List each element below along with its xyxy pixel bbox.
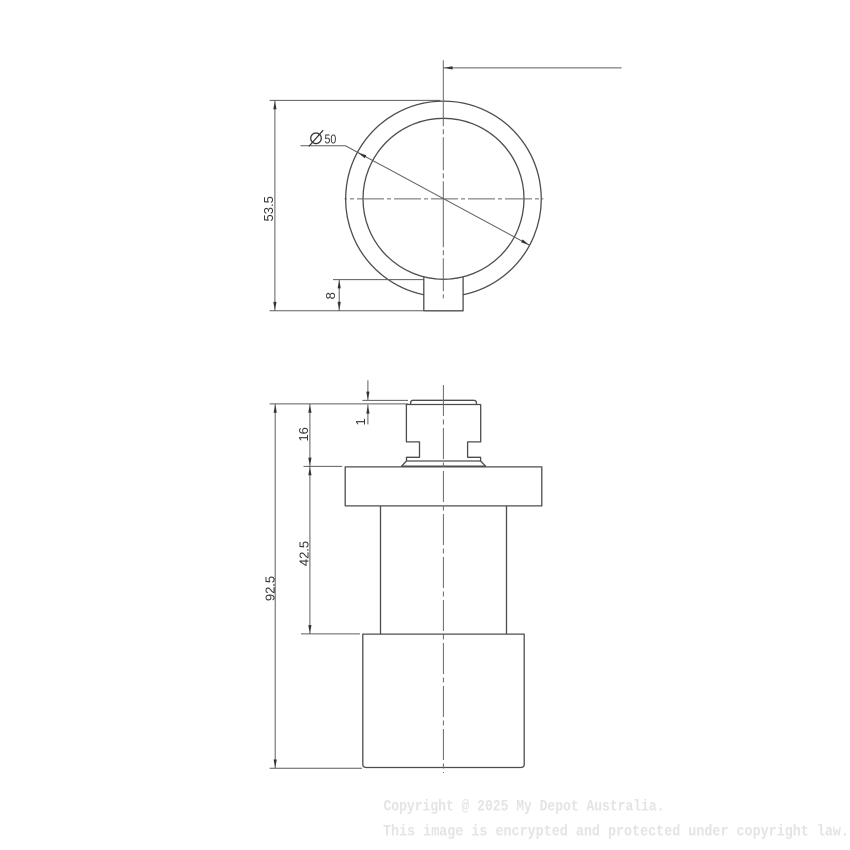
svg-text:16: 16	[296, 427, 311, 441]
svg-text:50: 50	[325, 132, 337, 147]
svg-text:1: 1	[353, 418, 368, 425]
svg-text:This image is encrypted and pr: This image is encrypted and protected un…	[383, 822, 849, 840]
svg-text:Copyright @ 2025 My Depot Aust: Copyright @ 2025 My Depot Australia.	[384, 798, 665, 816]
svg-text:8: 8	[323, 292, 338, 299]
svg-text:53.5: 53.5	[261, 196, 276, 221]
svg-text:42.5: 42.5	[297, 541, 312, 566]
svg-text:92.5: 92.5	[262, 576, 277, 601]
